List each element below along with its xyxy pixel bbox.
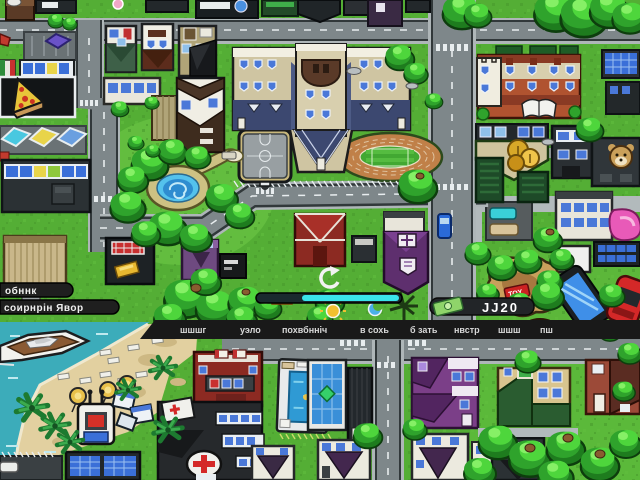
- svg-text:нвстр: нвстр: [454, 325, 480, 335]
- svg-text:похвбнніч: похвбнніч: [282, 325, 327, 335]
- svg-text:JJ20: JJ20: [482, 300, 519, 315]
- svg-text:уэло: уэло: [240, 325, 261, 335]
- svg-text:в сохь: в сохь: [360, 325, 389, 335]
- svg-text:б зать: б зать: [410, 325, 438, 335]
- svg-text:обннк: обннк: [5, 285, 37, 297]
- svg-text:шшш: шшш: [498, 325, 521, 335]
- svg-text:пш: пш: [540, 325, 553, 335]
- svg-text:шшшг: шшшг: [180, 325, 207, 335]
- svg-text:соирнрін Явор: соирнрін Явор: [4, 303, 84, 314]
